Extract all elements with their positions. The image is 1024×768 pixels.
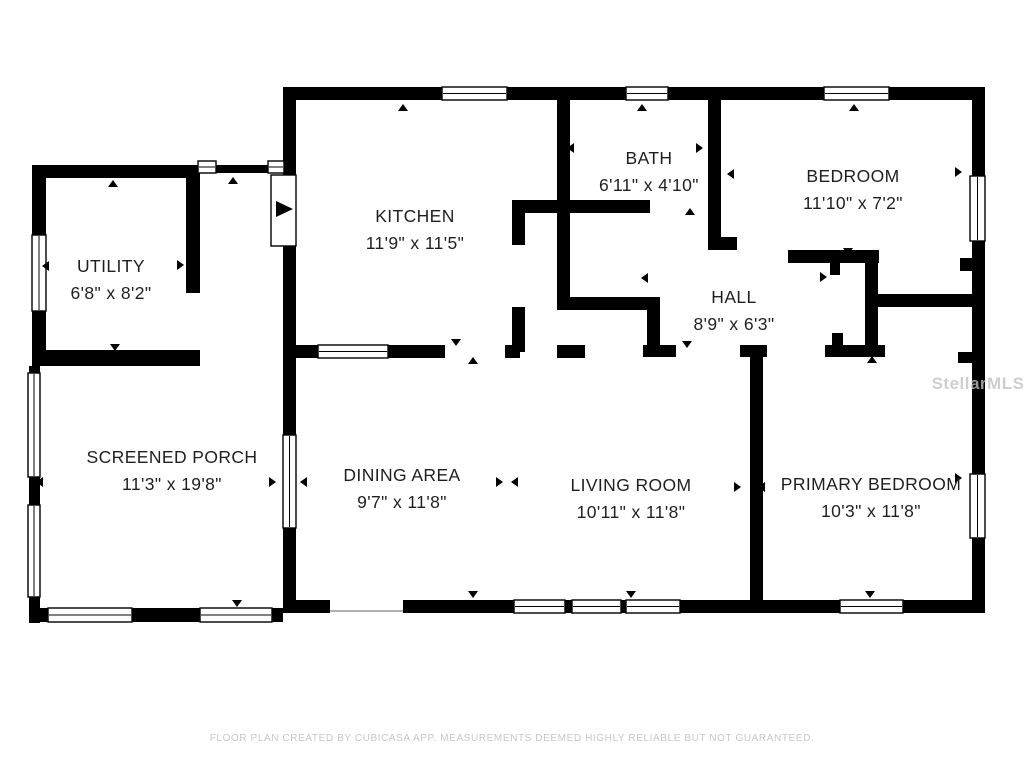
direction-marker-icon [468,591,478,598]
wall-segment [643,345,676,357]
room-label: UTILITY [77,256,145,276]
direction-marker-icon [867,356,877,363]
direction-marker-icon [955,167,962,177]
wall-segment [283,528,296,613]
wall-segment [32,165,46,235]
direction-marker-icon [626,591,636,598]
wall-segment [708,100,721,250]
direction-marker-icon [468,357,478,364]
wall-segment [878,294,972,307]
wall-segment [512,200,650,213]
wall-segment [708,237,737,250]
room-label: DINING AREA [343,465,460,485]
direction-marker-icon [696,143,703,153]
wall-segment [186,165,200,293]
wall-segment [647,297,660,352]
wall-segment [283,246,296,435]
wall-segment [29,608,48,622]
direction-marker-icon [734,482,741,492]
room-dimensions: 10'11" x 11'8" [577,502,686,522]
direction-marker-icon [228,177,238,184]
room-label: BEDROOM [806,166,899,186]
direction-marker-icon [641,273,648,283]
direction-marker-icon [865,591,875,598]
direction-marker-icon [398,104,408,111]
room-dimensions: 8'9" x 6'3" [694,314,775,334]
room-dimensions: 9'7" x 11'8" [357,492,447,512]
direction-marker-icon [820,272,827,282]
footer-disclaimer: FLOOR PLAN CREATED BY CUBICASA APP. MEAS… [0,733,1024,744]
direction-marker-icon [496,477,503,487]
wall-segment [557,345,585,358]
wall-segment [960,258,972,271]
direction-marker-icon [727,169,734,179]
room-dimensions: 11'3" x 19'8" [122,474,222,494]
room-dimensions: 10'3" x 11'8" [821,501,921,521]
direction-marker-icon [511,477,518,487]
direction-marker-icon [110,344,120,351]
wall-segment [557,203,570,300]
wall-segment [557,100,570,203]
wall-segment [283,87,296,175]
stellar-mls-watermark: StellarMLS [932,374,1024,394]
direction-marker-icon [269,477,276,487]
direction-marker-icon [451,339,461,346]
wall-segment [505,345,520,358]
wall-segment [958,352,972,363]
wall-segment [830,263,840,275]
wall-segment [557,297,660,310]
room-label: PRIMARY BEDROOM [781,474,961,494]
wall-segment [865,250,878,347]
floor-plan-page: UTILITY6'8" x 8'2"KITCHEN11'9" x 11'5"BA… [0,0,1024,768]
doorway-threshold [330,610,403,612]
direction-marker-icon [849,104,859,111]
room-dimensions: 11'9" x 11'5" [366,233,465,253]
wall-segment [750,345,763,600]
wall-segment [832,333,843,345]
room-label: KITCHEN [375,206,455,226]
wall-segment [32,165,200,178]
wall-segment [32,350,200,366]
room-dimensions: 6'8" x 8'2" [71,283,152,303]
room-label: LIVING ROOM [570,475,691,495]
direction-marker-icon [682,341,692,348]
room-label: SCREENED PORCH [87,447,258,467]
wall-segment [512,203,525,245]
direction-marker-icon [177,260,184,270]
direction-marker-icon [685,208,695,215]
direction-marker-icon [108,180,118,187]
room-dimensions: 6'11" x 4'10" [599,175,699,195]
floor-plan-svg: UTILITY6'8" x 8'2"KITCHEN11'9" x 11'5"BA… [0,0,1024,768]
room-dimensions: 11'10" x 7'2" [803,193,903,213]
room-label: HALL [711,287,756,307]
direction-marker-icon [637,104,647,111]
room-label: BATH [626,148,673,168]
direction-marker-icon [232,600,242,607]
wall-segment [132,608,200,622]
wall-segment [272,608,283,622]
direction-marker-icon [300,477,307,487]
